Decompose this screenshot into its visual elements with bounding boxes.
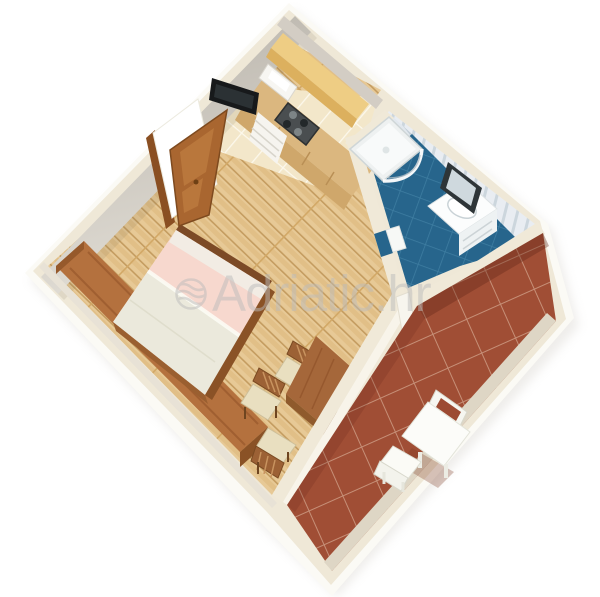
watermark: Adriatic.hr: [175, 265, 432, 322]
door-handle: [194, 180, 199, 185]
floor-plan-svg: Adriatic.hr: [0, 0, 600, 597]
watermark-text: Adriatic.hr: [212, 265, 432, 322]
floor-plan-render: Adriatic.hr: [0, 0, 600, 597]
